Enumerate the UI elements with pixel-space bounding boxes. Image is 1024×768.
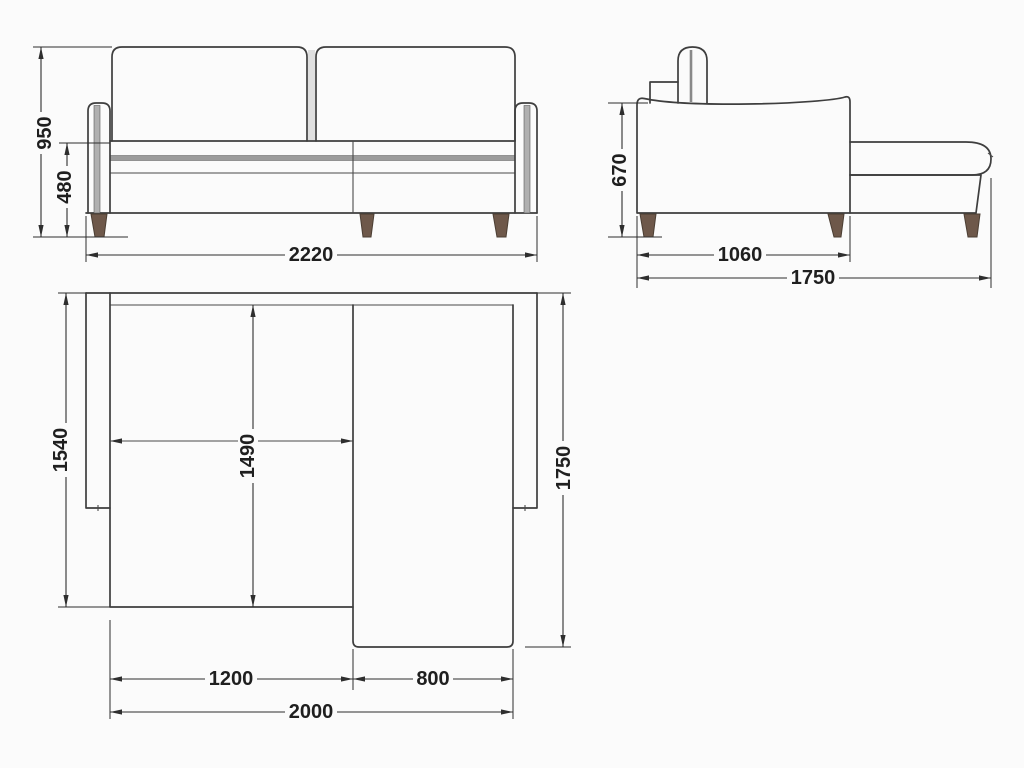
plan-right-arm [513, 293, 537, 508]
seat-rail [110, 156, 515, 161]
plan-inner-depth-label: 1490 [237, 434, 259, 479]
chaise-cushion [850, 142, 991, 175]
front-seat-height-label: 480 [54, 170, 76, 203]
plan-left-depth-label: 1540 [50, 428, 72, 473]
front-view: 950 480 2220 [33, 47, 537, 266]
side-total-depth-label: 1750 [791, 267, 836, 289]
side-view: 670 1060 1750 [608, 47, 993, 289]
side-leg-middle [828, 214, 844, 237]
plan-chaise-width-label: 800 [416, 668, 449, 690]
plan-total-depth-label: 1750 [553, 446, 575, 491]
cushion-gap [308, 50, 315, 140]
side-body-depth-label: 1060 [718, 244, 763, 266]
plan-seat-section-width-label: 1200 [209, 668, 254, 690]
side-arm-body [637, 97, 850, 213]
front-total-width-label: 2220 [289, 244, 334, 266]
plan-left-arm [86, 293, 110, 508]
top-view: 1540 1490 1750 1200 800 2000 [50, 293, 575, 723]
side-leg-right [964, 214, 980, 237]
plan-seat-outline [110, 293, 353, 607]
front-leg-right [493, 214, 509, 237]
side-arm-height-label: 670 [609, 153, 631, 186]
plan-chaise-outline [353, 305, 513, 647]
side-leg-left [640, 214, 656, 237]
side-back-cushion [678, 47, 707, 103]
chaise-base [850, 175, 981, 213]
left-arm-stripe [94, 106, 100, 214]
plan-total-width-label: 2000 [289, 701, 334, 723]
right-back-cushion [316, 47, 515, 141]
left-back-cushion [112, 47, 307, 141]
front-leg-middle [360, 214, 374, 237]
front-total-height-label: 950 [34, 116, 56, 149]
technical-drawing: 950 480 2220 670 1060 1750 [0, 0, 1024, 768]
right-arm-stripe [524, 106, 530, 214]
front-leg-left [91, 214, 107, 237]
